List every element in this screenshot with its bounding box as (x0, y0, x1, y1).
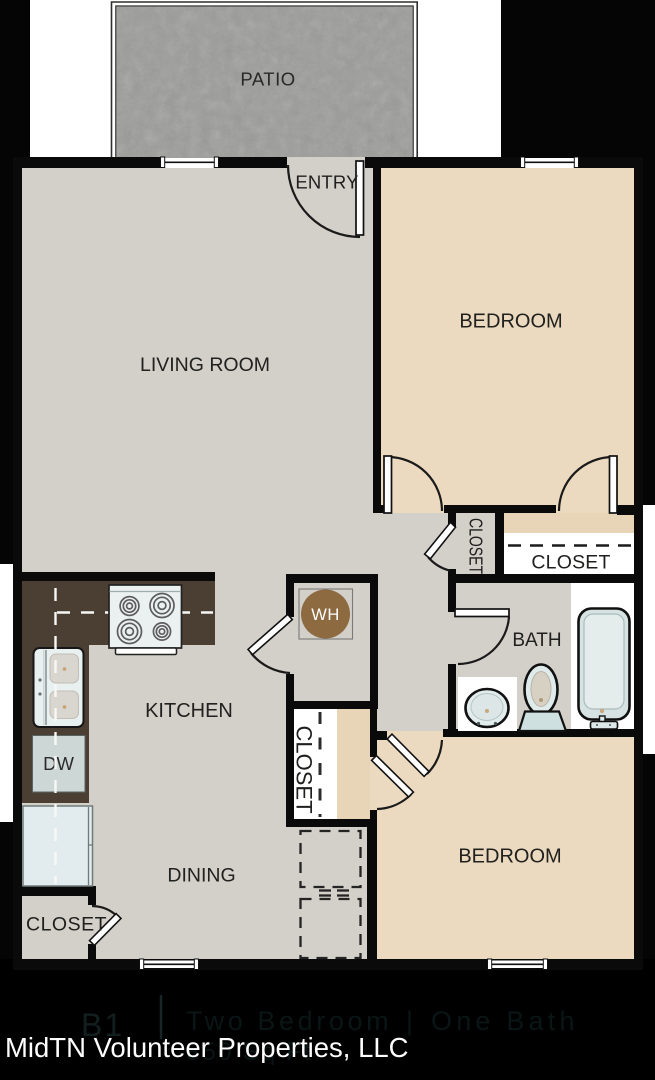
svg-text:CLOSET: CLOSET (26, 914, 107, 936)
svg-text:CLOSET: CLOSET (466, 518, 486, 574)
svg-text:BATH: BATH (512, 630, 561, 651)
svg-text:ENTRY: ENTRY (295, 172, 358, 193)
svg-text:DINING: DINING (167, 865, 235, 887)
svg-text:BEDROOM: BEDROOM (458, 846, 561, 868)
svg-text:BEDROOM: BEDROOM (459, 311, 562, 333)
svg-text:MidTN Volunteer Properties, LL: MidTN Volunteer Properties, LLC (5, 1032, 409, 1063)
svg-text:CLOSET: CLOSET (531, 552, 610, 574)
svg-text:DW: DW (43, 753, 74, 774)
svg-text:PATIO: PATIO (240, 69, 295, 90)
svg-text:One Bath: One Bath (431, 1006, 579, 1036)
svg-text:LIVING ROOM: LIVING ROOM (140, 354, 270, 376)
svg-text:KITCHEN: KITCHEN (145, 700, 233, 722)
svg-text:CLOSET: CLOSET (292, 725, 317, 813)
svg-text:WH: WH (311, 606, 340, 624)
